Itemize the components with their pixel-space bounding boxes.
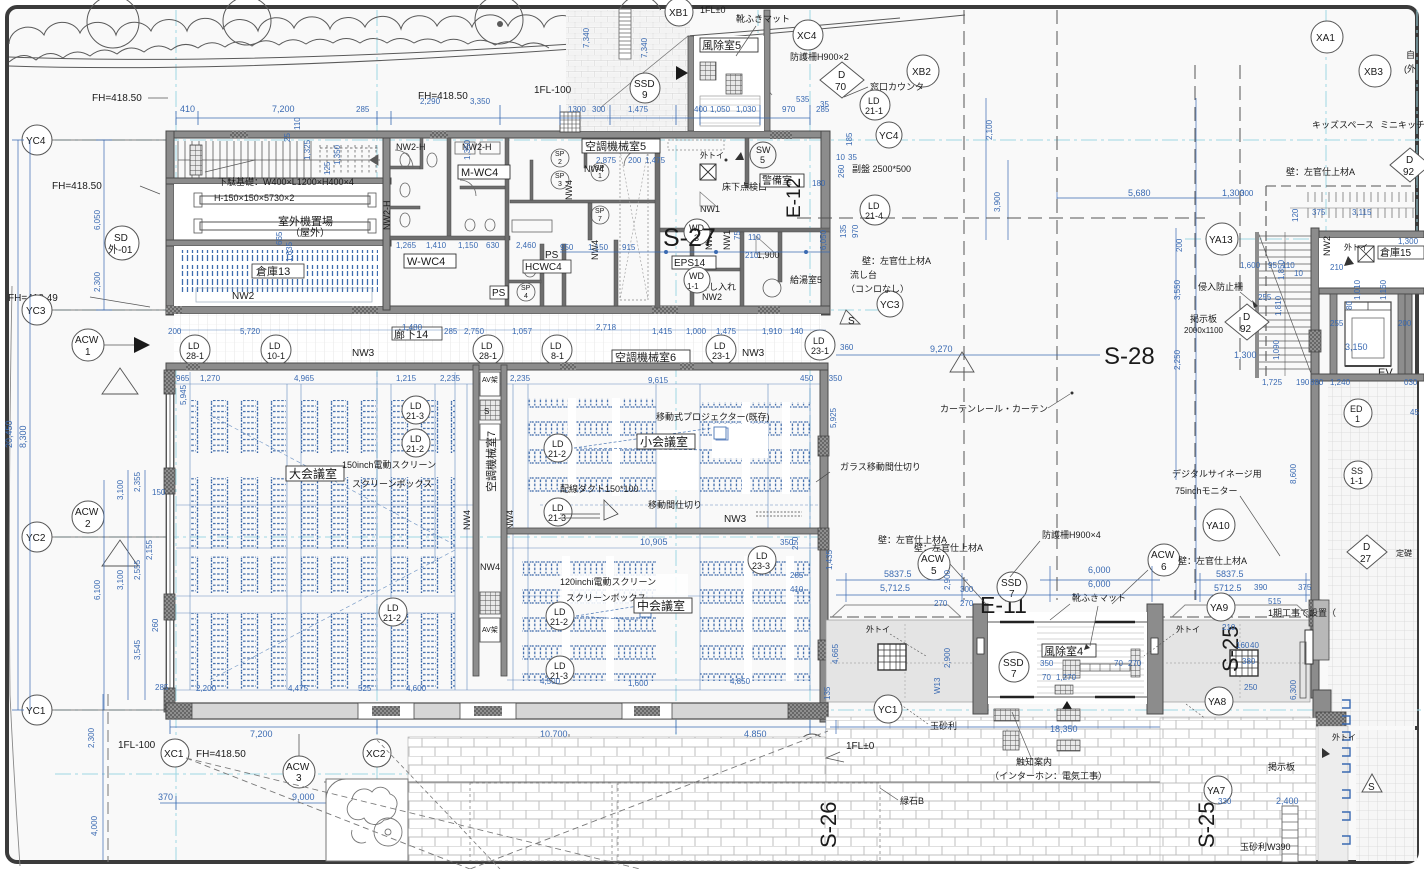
svg-text:LD: LD — [188, 341, 200, 351]
svg-text:5837.5: 5837.5 — [1216, 569, 1244, 579]
svg-text:210: 210 — [1330, 263, 1344, 272]
svg-text:（屋外）: （屋外） — [290, 227, 330, 239]
svg-text:AV架: AV架 — [482, 376, 498, 384]
svg-text:450: 450 — [800, 374, 814, 383]
svg-text:（インターホン：電気工事）: （インターホン：電気工事） — [990, 770, 1107, 781]
svg-text:10,905: 10,905 — [640, 537, 668, 547]
svg-text:21-3: 21-3 — [406, 411, 424, 421]
svg-text:3: 3 — [558, 181, 562, 188]
svg-text:(外: (外 — [1404, 63, 1416, 74]
svg-text:4: 4 — [524, 293, 528, 300]
svg-text:玉砂利W390: 玉砂利W390 — [1240, 841, 1291, 852]
svg-text:135: 135 — [839, 224, 848, 238]
svg-text:965: 965 — [176, 374, 190, 383]
svg-text:2,155: 2,155 — [145, 539, 154, 560]
svg-text:1,900: 1,900 — [757, 250, 780, 260]
svg-text:6: 6 — [1161, 562, 1167, 573]
svg-text:防護柵H900×4: 防護柵H900×4 — [1042, 529, 1101, 540]
svg-text:285: 285 — [356, 105, 370, 114]
svg-text:LD: LD — [481, 341, 493, 351]
svg-text:NW4: NW4 — [480, 562, 500, 572]
svg-text:350: 350 — [1040, 659, 1054, 668]
svg-text:1FL±0: 1FL±0 — [846, 741, 875, 752]
svg-text:1,010: 1,010 — [1353, 279, 1362, 300]
svg-text:自: 自 — [1406, 49, 1415, 60]
svg-text:515: 515 — [1268, 597, 1282, 606]
svg-text:1,725: 1,725 — [1262, 378, 1283, 387]
svg-text:3,545: 3,545 — [133, 639, 142, 660]
svg-text:3,100: 3,100 — [116, 479, 125, 500]
svg-text:壁：左官仕上材A: 壁：左官仕上材A — [914, 542, 983, 553]
svg-text:135: 135 — [823, 686, 832, 700]
svg-text:28-1: 28-1 — [479, 351, 497, 361]
svg-text:950: 950 — [560, 243, 574, 252]
svg-text:LD: LD — [813, 336, 825, 346]
svg-text:21-2: 21-2 — [548, 449, 566, 459]
svg-text:2,900: 2,900 — [943, 647, 952, 668]
svg-text:120: 120 — [1291, 208, 1300, 222]
svg-text:LD: LD — [269, 341, 281, 351]
svg-text:SP: SP — [595, 208, 605, 215]
svg-text:YA8: YA8 — [1208, 697, 1227, 708]
svg-text:緑石B: 緑石B — [900, 795, 924, 806]
svg-text:70: 70 — [1114, 659, 1123, 668]
svg-text:YC4: YC4 — [879, 131, 899, 142]
svg-text:23-1: 23-1 — [712, 351, 730, 361]
svg-text:1,480: 1,480 — [402, 323, 423, 332]
svg-text:YA7: YA7 — [1207, 786, 1226, 797]
svg-text:120inchi電動スクリーン: 120inchi電動スクリーン — [560, 577, 656, 587]
svg-text:1,000: 1,000 — [686, 327, 707, 336]
svg-text:NW3: NW3 — [742, 348, 765, 359]
svg-text:S-28: S-28 — [1104, 343, 1155, 370]
svg-text:210: 210 — [1222, 623, 1236, 632]
svg-text:1,057: 1,057 — [512, 327, 533, 336]
svg-text:8,300: 8,300 — [18, 425, 28, 448]
svg-text:ミニキッチ: ミニキッチ — [1380, 120, 1424, 130]
svg-text:YC3: YC3 — [26, 306, 46, 317]
svg-text:下駄基礎：W400×L1200×H400×4: 下駄基礎：W400×L1200×H400×4 — [218, 176, 354, 187]
svg-text:1,635: 1,635 — [285, 241, 294, 262]
svg-text:空調機械室5: 空調機械室5 — [585, 139, 646, 153]
svg-text:2,555: 2,555 — [133, 559, 142, 580]
svg-text:2,900: 2,900 — [943, 569, 952, 590]
svg-text:410: 410 — [180, 104, 195, 114]
svg-text:S: S — [484, 407, 489, 416]
svg-text:NW2: NW2 — [232, 291, 255, 302]
svg-text:風除室5: 風除室5 — [702, 38, 741, 52]
svg-text:D: D — [838, 70, 845, 81]
svg-text:665: 665 — [275, 231, 284, 245]
svg-text:7,340: 7,340 — [582, 27, 591, 48]
svg-text:4,500: 4,500 — [540, 677, 561, 686]
svg-text:2,300: 2,300 — [87, 727, 96, 748]
svg-text:3,550: 3,550 — [1173, 279, 1182, 300]
svg-text:小会議室: 小会議室 — [640, 434, 688, 449]
svg-text:外トイ: 外トイ — [866, 624, 890, 634]
svg-text:3,350: 3,350 — [470, 97, 491, 106]
svg-text:空調機械室7: 空調機械室7 — [484, 431, 498, 492]
svg-text:1,265: 1,265 — [396, 241, 417, 250]
svg-text:4,850: 4,850 — [730, 677, 751, 686]
svg-text:45: 45 — [1410, 408, 1419, 417]
svg-text:キッズスペース: キッズスペース — [1312, 119, 1374, 130]
svg-text:SS: SS — [1351, 466, 1363, 476]
svg-text:5,925: 5,925 — [829, 407, 838, 428]
svg-text:70: 70 — [835, 82, 847, 93]
svg-text:LD: LD — [868, 96, 880, 106]
svg-text:SP: SP — [555, 173, 565, 180]
svg-text:YC1: YC1 — [878, 705, 898, 716]
svg-text:2,300: 2,300 — [93, 271, 102, 292]
svg-text:6,300: 6,300 — [1289, 679, 1298, 700]
svg-text:880: 880 — [1310, 378, 1324, 387]
svg-text:LD: LD — [550, 341, 562, 351]
svg-text:1,435: 1,435 — [825, 549, 834, 570]
svg-text:3: 3 — [296, 773, 302, 784]
svg-text:150inch電動スクリーン: 150inch電動スクリーン — [342, 460, 436, 470]
svg-text:2,355: 2,355 — [133, 471, 142, 492]
svg-text:ACW: ACW — [75, 507, 99, 518]
svg-text:5,720: 5,720 — [240, 327, 261, 336]
svg-text:2,718: 2,718 — [596, 323, 617, 332]
svg-text:侵入防止柵: 侵入防止柵 — [1198, 281, 1243, 292]
svg-text:XB2: XB2 — [912, 67, 931, 78]
svg-text:21-4: 21-4 — [865, 211, 883, 221]
svg-text:D: D — [1243, 312, 1250, 323]
svg-text:中会議室: 中会議室 — [637, 598, 685, 613]
svg-text:1: 1 — [1355, 414, 1360, 424]
svg-text:W-WC4: W-WC4 — [407, 256, 445, 268]
svg-text:LD: LD — [868, 201, 880, 211]
svg-text:1,150: 1,150 — [458, 241, 479, 250]
svg-text:1,475: 1,475 — [628, 105, 649, 114]
svg-text:300: 300 — [592, 105, 606, 114]
svg-text:防護柵H900×2: 防護柵H900×2 — [790, 51, 849, 62]
svg-text:外トイ: 外トイ — [700, 150, 724, 160]
svg-text:200: 200 — [628, 156, 642, 165]
svg-text:40: 40 — [1250, 641, 1259, 650]
svg-text:255: 255 — [1258, 293, 1272, 302]
svg-text:23-1: 23-1 — [811, 346, 829, 356]
svg-text:YA10: YA10 — [1206, 521, 1230, 532]
svg-text:9,270: 9,270 — [930, 344, 953, 354]
svg-text:1,325: 1,325 — [303, 139, 312, 160]
svg-text:285: 285 — [444, 327, 458, 336]
svg-text:7,340: 7,340 — [640, 37, 649, 58]
svg-text:YA13: YA13 — [1209, 235, 1233, 246]
svg-text:ACW: ACW — [286, 762, 310, 773]
svg-text:70: 70 — [1042, 673, 1051, 682]
svg-text:4,965: 4,965 — [294, 374, 315, 383]
svg-text:210: 210 — [745, 251, 759, 260]
svg-text:ガラス移動間仕切り: ガラス移動間仕切り — [840, 461, 921, 472]
svg-text:1FL±0: 1FL±0 — [700, 5, 725, 15]
svg-text:2,460: 2,460 — [516, 241, 537, 250]
svg-text:185: 185 — [845, 132, 854, 146]
svg-text:4,000: 4,000 — [90, 815, 99, 836]
svg-text:270: 270 — [934, 599, 948, 608]
svg-text:285: 285 — [155, 683, 169, 692]
svg-text:SSD: SSD — [634, 79, 655, 90]
svg-text:LD: LD — [554, 661, 566, 671]
svg-text:27: 27 — [1360, 554, 1372, 565]
svg-text:4,665: 4,665 — [831, 643, 840, 664]
svg-text:9: 9 — [642, 90, 648, 101]
svg-text:給湯室5: 給湯室5 — [790, 274, 822, 285]
svg-text:10: 10 — [836, 153, 845, 162]
svg-text:1,415: 1,415 — [652, 327, 673, 336]
svg-text:XC1: XC1 — [164, 749, 184, 760]
svg-text:NW4: NW4 — [564, 180, 574, 200]
svg-text:1: 1 — [85, 347, 91, 358]
svg-text:5,945: 5,945 — [179, 384, 188, 405]
svg-text:525: 525 — [358, 684, 372, 693]
svg-text:21-1: 21-1 — [865, 106, 883, 116]
svg-text:1,215: 1,215 — [396, 374, 417, 383]
svg-text:150: 150 — [152, 488, 166, 497]
svg-text:92: 92 — [1240, 324, 1252, 335]
svg-text:2,400: 2,400 — [1276, 796, 1299, 806]
svg-text:1,150: 1,150 — [588, 243, 609, 252]
svg-text:1FL-100: 1FL-100 — [118, 740, 156, 751]
svg-text:28-1: 28-1 — [186, 351, 204, 361]
svg-text:1,600: 1,600 — [628, 679, 649, 688]
svg-text:5: 5 — [760, 155, 765, 165]
svg-text:75inchモニター: 75inchモニター — [1175, 486, 1238, 496]
svg-text:25: 25 — [283, 133, 292, 142]
svg-text:1: 1 — [598, 173, 602, 180]
svg-text:5,712.5: 5,712.5 — [880, 583, 910, 593]
svg-text:1期工事で設置（: 1期工事で設置（ — [1268, 607, 1336, 618]
svg-text:915: 915 — [622, 243, 636, 252]
svg-text:1,910: 1,910 — [762, 327, 783, 336]
svg-text:S-27: S-27 — [663, 224, 716, 252]
svg-text:副盤 2500*500: 副盤 2500*500 — [852, 163, 911, 174]
svg-text:1,300: 1,300 — [1222, 188, 1245, 198]
svg-text:380: 380 — [1242, 657, 1256, 666]
svg-text:2: 2 — [558, 159, 562, 166]
svg-text:移動式プロジェクター(既存): 移動式プロジェクター(既存) — [656, 411, 770, 422]
svg-text:1,410: 1,410 — [426, 241, 447, 250]
svg-text:6,100: 6,100 — [93, 579, 102, 600]
svg-text:玉砂利: 玉砂利 — [930, 720, 957, 731]
svg-text:1,810: 1,810 — [1274, 295, 1283, 316]
svg-text:1-1: 1-1 — [1350, 476, 1363, 486]
svg-text:（コンロなし）: （コンロなし） — [846, 284, 909, 294]
svg-text:壁：左官仕上材A: 壁：左官仕上材A — [1178, 555, 1247, 566]
svg-text:NW2-H: NW2-H — [396, 142, 426, 152]
svg-text:E-12: E-12 — [784, 178, 805, 218]
svg-text:M-WC4: M-WC4 — [461, 167, 498, 179]
svg-text:410: 410 — [790, 585, 804, 594]
svg-text:9,615: 9,615 — [648, 376, 669, 385]
svg-text:LD: LD — [387, 603, 399, 613]
svg-text:390: 390 — [1254, 583, 1268, 592]
svg-text:1,270: 1,270 — [200, 374, 221, 383]
svg-text:5,680: 5,680 — [1128, 188, 1151, 198]
svg-text:140: 140 — [790, 327, 804, 336]
svg-text:2,290: 2,290 — [420, 97, 441, 106]
svg-text:NW2: NW2 — [702, 292, 722, 302]
svg-text:NW3: NW3 — [724, 514, 747, 525]
svg-text:倉庫15: 倉庫15 — [1380, 246, 1412, 259]
svg-text:4,600: 4,600 — [406, 684, 427, 693]
svg-text:LD: LD — [756, 551, 768, 561]
svg-text:21-2: 21-2 — [550, 617, 568, 627]
svg-text:SSD: SSD — [1003, 658, 1024, 669]
svg-text:1,350: 1,350 — [333, 144, 342, 165]
svg-text:壁：左官仕上材A: 壁：左官仕上材A — [862, 255, 931, 266]
svg-text:外トイ: 外トイ — [1176, 624, 1200, 634]
svg-text:D: D — [1363, 542, 1370, 553]
svg-text:NW4: NW4 — [584, 164, 604, 174]
svg-text:XB3: XB3 — [1364, 67, 1383, 78]
svg-text:LD: LD — [410, 401, 422, 411]
svg-text:流し台: 流し台 — [850, 269, 877, 280]
svg-text:FH=418.50: FH=418.50 — [52, 181, 102, 192]
svg-text:1,240: 1,240 — [1330, 378, 1351, 387]
svg-text:SW: SW — [756, 145, 771, 155]
svg-text:270: 270 — [960, 599, 974, 608]
svg-text:95: 95 — [1268, 261, 1277, 270]
svg-text:SSD: SSD — [1001, 578, 1022, 589]
svg-text:180: 180 — [812, 179, 826, 188]
svg-text:92: 92 — [1403, 167, 1415, 178]
svg-text:110: 110 — [748, 233, 761, 242]
svg-text:YC4: YC4 — [26, 136, 46, 147]
svg-text:1,350: 1,350 — [463, 139, 472, 160]
svg-text:LD: LD — [554, 607, 566, 617]
svg-text:D: D — [1406, 155, 1413, 166]
svg-text:8-1: 8-1 — [551, 351, 564, 361]
svg-text:YC1: YC1 — [26, 706, 46, 717]
svg-text:2,250: 2,250 — [1173, 349, 1182, 370]
svg-text:SD: SD — [114, 233, 128, 244]
svg-text:PS: PS — [545, 250, 559, 261]
svg-text:5837.5: 5837.5 — [884, 569, 912, 579]
svg-text:360: 360 — [840, 343, 854, 352]
svg-text:AV架: AV架 — [482, 626, 498, 634]
svg-text:35: 35 — [820, 100, 829, 109]
svg-text:20,450: 20,450 — [4, 420, 14, 448]
svg-text:255: 255 — [1330, 319, 1344, 328]
svg-text:80: 80 — [1345, 301, 1354, 310]
svg-text:NW2-H: NW2-H — [382, 201, 392, 231]
svg-text:110: 110 — [293, 117, 302, 130]
svg-text:250: 250 — [1244, 683, 1258, 692]
svg-text:3,100: 3,100 — [116, 569, 125, 590]
svg-text:配線ダクト150*100: 配線ダクト150*100 — [560, 483, 639, 494]
svg-text:35: 35 — [848, 153, 857, 162]
svg-text:ACW: ACW — [75, 335, 99, 346]
svg-text:H-150×150×5730×2: H-150×150×5730×2 — [214, 193, 294, 203]
svg-text:3,900: 3,900 — [993, 191, 1002, 212]
svg-text:6,000: 6,000 — [1088, 565, 1111, 575]
svg-text:ACW: ACW — [921, 554, 945, 565]
svg-text:XC2: XC2 — [366, 749, 386, 760]
svg-text:250: 250 — [791, 536, 800, 550]
svg-text:PS: PS — [492, 288, 506, 299]
svg-text:触知案内: 触知案内 — [1016, 756, 1052, 767]
svg-text:7,200: 7,200 — [250, 729, 273, 739]
svg-text:370: 370 — [158, 792, 173, 802]
svg-text:掲示板: 掲示板 — [1268, 761, 1295, 772]
svg-text:7: 7 — [1011, 669, 1017, 680]
svg-text:400: 400 — [694, 105, 708, 114]
svg-text:W13: W13 — [933, 677, 942, 694]
svg-text:NW2: NW2 — [1322, 236, 1332, 256]
svg-text:掲示板: 掲示板 — [1190, 313, 1217, 324]
svg-text:外-01: 外-01 — [108, 244, 133, 256]
svg-text:1,160: 1,160 — [1379, 279, 1388, 300]
svg-text:1,300: 1,300 — [1234, 350, 1257, 360]
svg-text:125: 125 — [323, 161, 332, 175]
svg-text:ACW: ACW — [1151, 550, 1175, 561]
svg-text:10: 10 — [1294, 269, 1303, 278]
svg-text:190: 190 — [1296, 378, 1310, 387]
svg-text:FH=418.50: FH=418.50 — [92, 93, 142, 104]
svg-text:定礎: 定礎 — [1396, 548, 1412, 558]
svg-text:970: 970 — [851, 224, 860, 238]
svg-text:1,050: 1,050 — [710, 105, 731, 114]
svg-text:6,050: 6,050 — [93, 209, 102, 230]
svg-text:S-25: S-25 — [1194, 802, 1219, 848]
svg-text:大会議室: 大会議室 — [289, 466, 337, 481]
svg-text:NW3: NW3 — [352, 348, 375, 359]
svg-text:S: S — [1368, 782, 1375, 793]
svg-text:S: S — [848, 316, 855, 327]
svg-text:NW4: NW4 — [505, 510, 515, 530]
svg-text:YA9: YA9 — [1210, 603, 1229, 614]
svg-text:NW1: NW1 — [700, 204, 720, 214]
svg-text:靴ふきマット: 靴ふきマット — [1072, 592, 1126, 603]
svg-text:10-1: 10-1 — [267, 351, 285, 361]
svg-text:21-2: 21-2 — [406, 444, 424, 454]
svg-text:375: 375 — [1298, 583, 1312, 592]
svg-text:5712.5: 5712.5 — [1214, 583, 1242, 593]
svg-text:2,235: 2,235 — [440, 374, 461, 383]
svg-text:1,090: 1,090 — [1272, 339, 1281, 360]
svg-text:1,030: 1,030 — [736, 105, 757, 114]
svg-text:3,115: 3,115 — [1352, 208, 1372, 217]
svg-text:LD: LD — [714, 341, 726, 351]
svg-text:7: 7 — [1009, 589, 1015, 600]
svg-text:LD: LD — [552, 439, 564, 449]
svg-text:4,475: 4,475 — [288, 684, 309, 693]
svg-text:8,600: 8,600 — [1289, 463, 1298, 484]
svg-text:160: 160 — [1236, 641, 1250, 650]
svg-text:1300: 1300 — [568, 105, 586, 114]
svg-text:6,050: 6,050 — [819, 229, 828, 250]
svg-text:2000x1100: 2000x1100 — [1184, 326, 1224, 335]
svg-text:21-2: 21-2 — [383, 613, 401, 623]
svg-text:ED: ED — [1350, 404, 1363, 414]
svg-text:5: 5 — [931, 566, 937, 577]
svg-text:6,000: 6,000 — [1088, 579, 1111, 589]
svg-text:1,600: 1,600 — [1240, 261, 1261, 270]
svg-text:靴ふきマット: 靴ふきマット — [736, 13, 790, 24]
svg-text:630: 630 — [486, 241, 500, 250]
svg-text:XA1: XA1 — [1316, 33, 1335, 44]
svg-text:カーテンレール・カーテン: カーテンレール・カーテン — [940, 404, 1048, 414]
svg-text:LD: LD — [552, 503, 564, 513]
svg-text:75: 75 — [733, 231, 742, 240]
svg-text:300: 300 — [960, 585, 974, 594]
svg-text:風除室4: 風除室4 — [1044, 644, 1083, 658]
svg-text:デジタルサイネージ用: デジタルサイネージ用 — [1172, 468, 1262, 479]
svg-text:1,300: 1,300 — [1398, 237, 1419, 246]
